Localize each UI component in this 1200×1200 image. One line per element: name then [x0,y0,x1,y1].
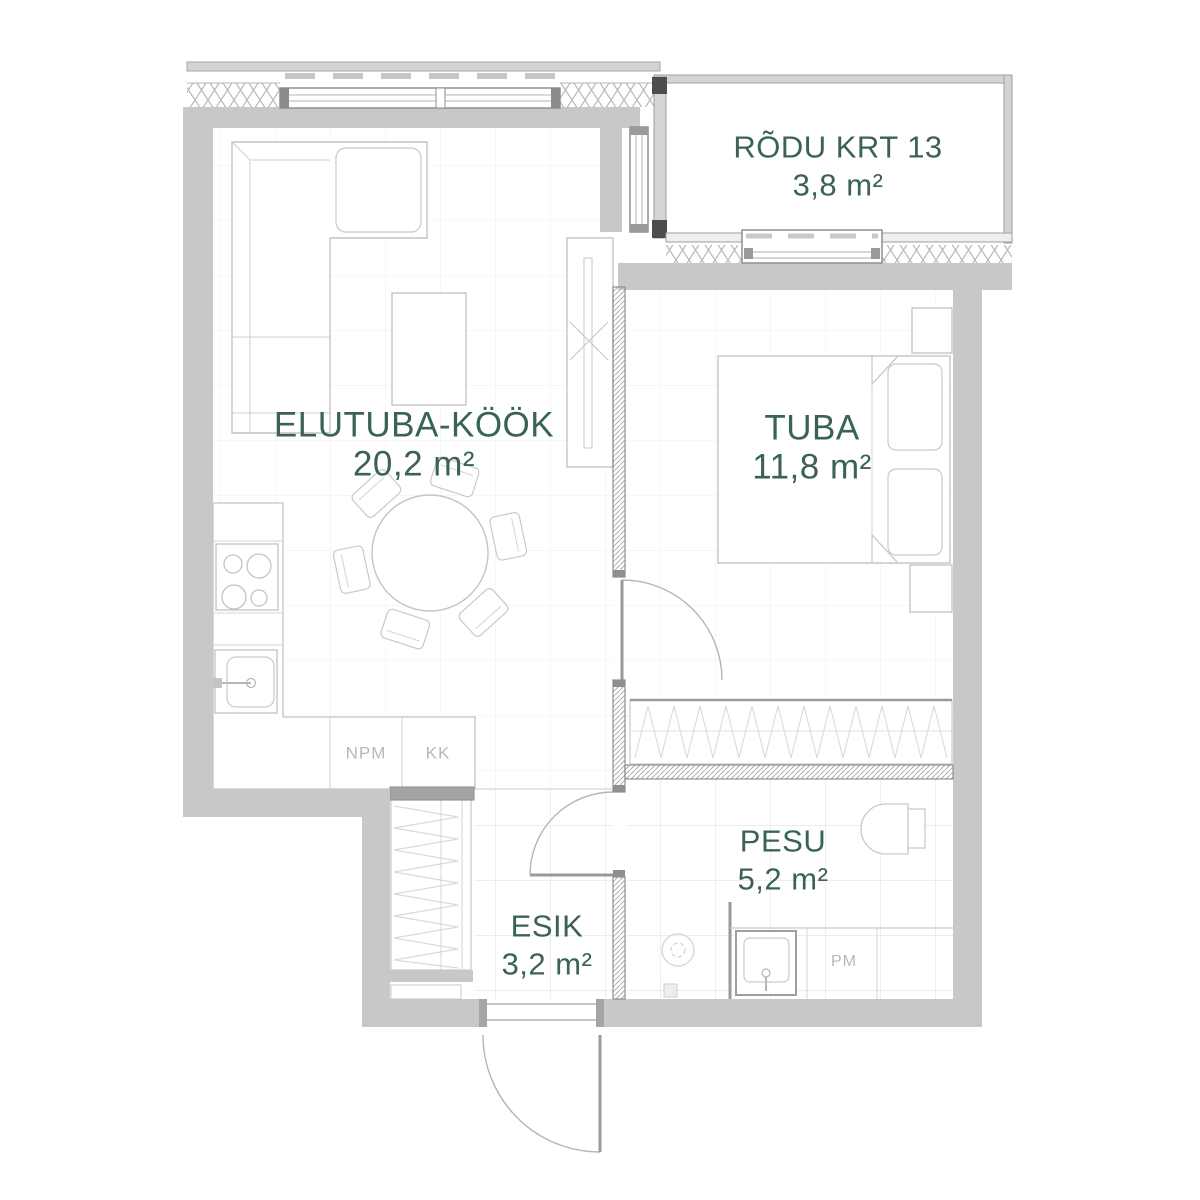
balcony-railing [882,233,1012,242]
nightstand [912,308,952,353]
room-area-pesu: 5,2 m² [738,864,829,895]
nightstand [910,565,952,612]
bathroom-sink [736,931,796,995]
room-label-tuba: TUBA [764,411,859,446]
entry-shelf [391,985,461,999]
appliance-label-kk: KK [426,745,451,762]
door-entrance [483,1035,600,1152]
balcony-railing [666,233,742,242]
appliance-label-pm: PM [831,954,857,970]
entrance-threshold [479,999,604,1027]
floor-plan: RÕDU KRT 13 3,8 m² ELUTUBA-KÖÖK 20,2 m² … [0,0,1200,1200]
tv-stand [567,238,613,467]
room-label-rodu: RÕDU KRT 13 [733,132,942,163]
entry-wardrobe [385,787,474,999]
room-area-esik: 3,2 m² [502,949,593,980]
tuba-wardrobe [630,700,952,764]
pillow [888,469,942,555]
room-label-pesu: PESU [740,826,826,857]
balcony-door [630,127,648,232]
room-area-rodu: 3,8 m² [793,170,884,201]
coffee-table [392,293,466,405]
appliance-label-npm: NPM [346,745,387,762]
pillow [888,364,942,450]
floor-plan-svg [0,0,1200,1200]
room-label-esik: ESIK [511,911,584,942]
room-label-elutuba: ELUTUBA-KÖÖK [274,408,554,443]
top-wall-details [187,62,660,108]
room-area-tuba: 11,8 m² [752,450,872,485]
toilet [861,804,925,854]
tuba-window [742,230,882,263]
room-area-elutuba: 20,2 m² [353,447,475,482]
living-window [280,88,560,108]
